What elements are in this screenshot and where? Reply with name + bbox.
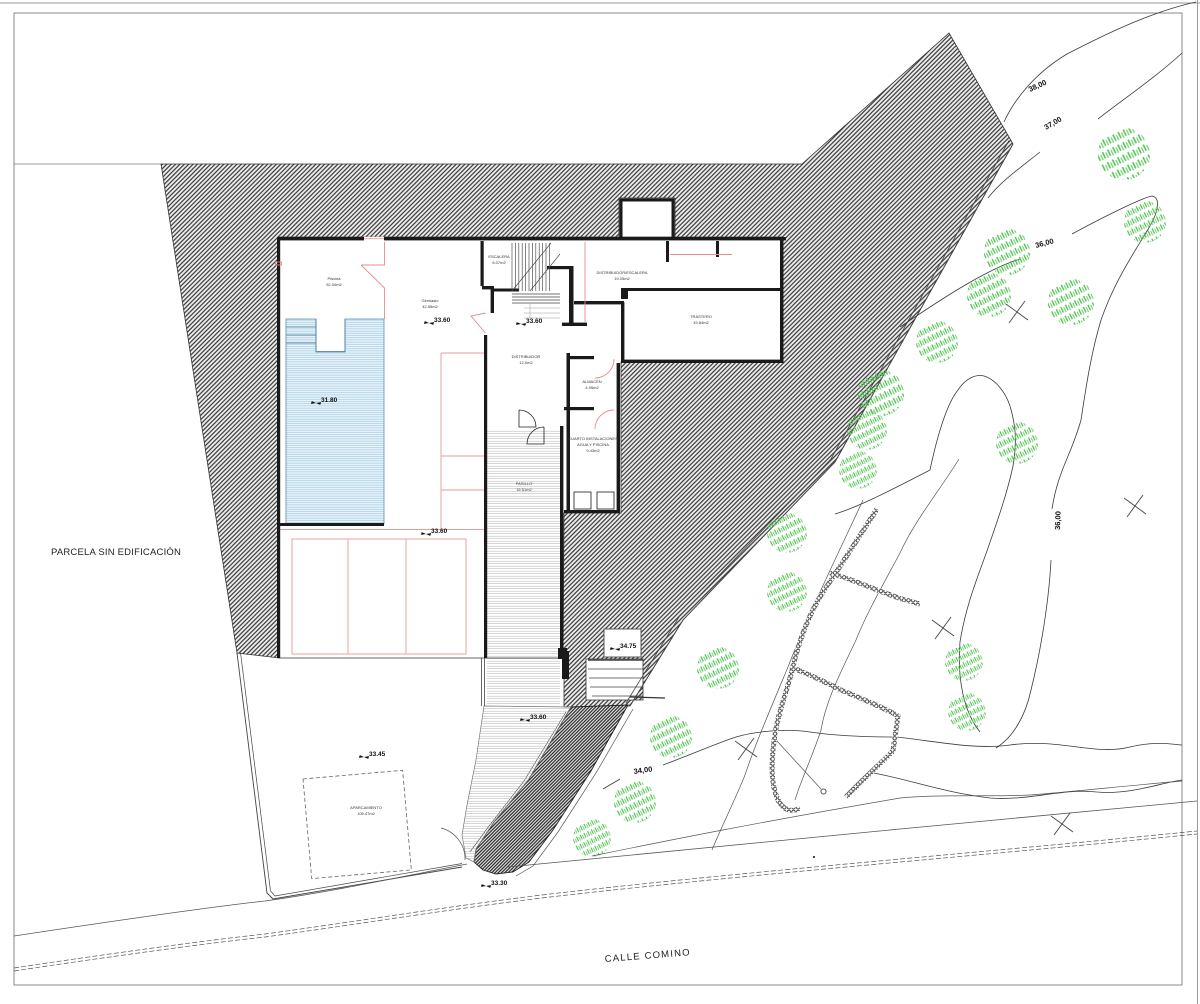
svg-text:Gimnasio: Gimnasio	[422, 298, 440, 303]
svg-text:105.47m2: 105.47m2	[357, 811, 376, 816]
svg-text:Piscina: Piscina	[328, 276, 342, 281]
svg-text:42.55m2: 42.55m2	[422, 304, 438, 309]
svg-text:ESCALERA: ESCALERA	[488, 254, 510, 259]
svg-text:31.80: 31.80	[321, 397, 338, 404]
svg-text:PASILLO: PASILLO	[516, 481, 532, 486]
svg-text:12.0m2: 12.0m2	[519, 360, 533, 365]
svg-text:36,00: 36,00	[1053, 511, 1063, 530]
svg-text:PARCELA SIN EDIFICACIÓN: PARCELA SIN EDIFICACIÓN	[51, 547, 181, 558]
svg-text:15.51m2: 15.51m2	[516, 487, 532, 492]
svg-text:ALMACÉN: ALMACÉN	[582, 379, 601, 384]
svg-text:19.84m2: 19.84m2	[693, 320, 709, 325]
svg-text:DISTRIBUIDOR: DISTRIBUIDOR	[512, 354, 541, 359]
svg-text:34.75: 34.75	[620, 643, 637, 650]
svg-text:33.30: 33.30	[491, 880, 508, 887]
svg-text:APARCAMIENTO: APARCAMIENTO	[350, 805, 382, 810]
svg-text:33.60: 33.60	[530, 714, 547, 721]
svg-text:33.60: 33.60	[434, 317, 451, 324]
svg-text:AGUA Y PISCINA: AGUA Y PISCINA	[577, 442, 609, 447]
svg-text:33.45: 33.45	[369, 751, 386, 758]
svg-text:19.05m2: 19.05m2	[614, 276, 630, 281]
svg-text:9.43m2: 9.43m2	[586, 448, 600, 453]
svg-text:CUARTO INSTALACIONES: CUARTO INSTALACIONES	[568, 436, 618, 441]
svg-text:DISTRIBUIDOR/ESCALERA: DISTRIBUIDOR/ESCALERA	[596, 270, 647, 275]
svg-text:TRASTERO: TRASTERO	[690, 314, 712, 319]
svg-text:6.07m2: 6.07m2	[492, 260, 506, 265]
svg-text:33.60: 33.60	[431, 528, 448, 535]
svg-text:4.95m2: 4.95m2	[585, 385, 599, 390]
svg-text:33.60: 33.60	[526, 318, 543, 325]
svg-text:52.00m2: 52.00m2	[326, 282, 342, 287]
